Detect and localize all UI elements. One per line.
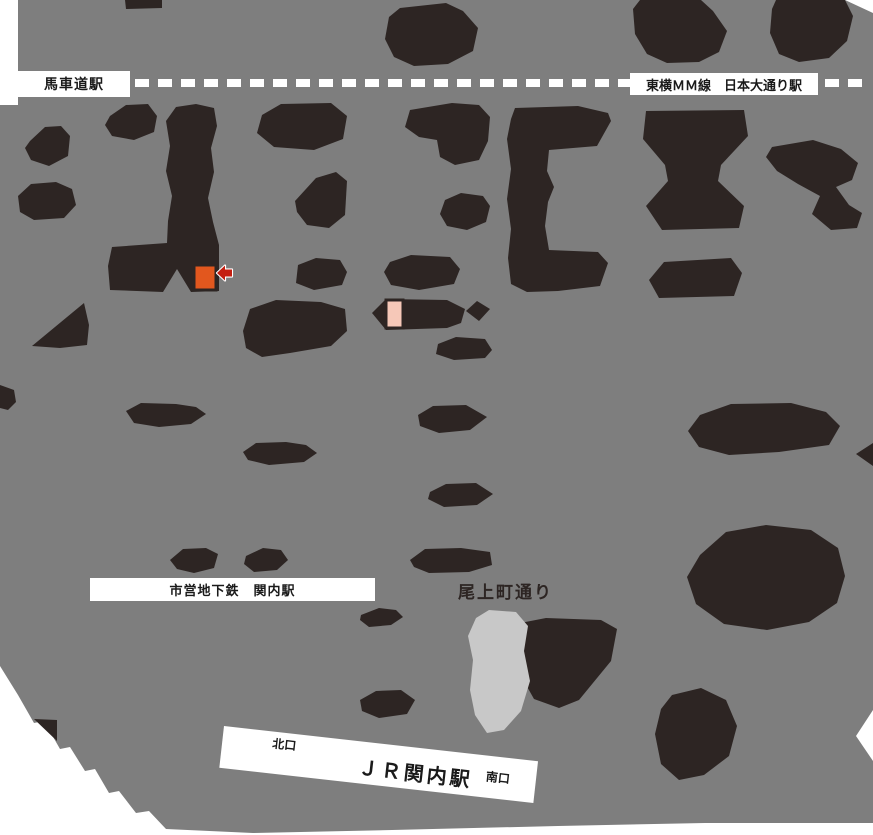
- station-label-bashamichi: 馬車道駅: [18, 71, 130, 97]
- station-label-subway-kannai: 市営地下鉄 関内駅: [90, 578, 375, 601]
- building: [649, 258, 742, 298]
- map-graphic: [0, 0, 873, 835]
- north-exit-label: 北口: [271, 735, 297, 755]
- station-label-mm-line-nihonodori: 東横ＭＭ線 日本大通り駅: [630, 73, 818, 95]
- building: [384, 255, 460, 290]
- south-exit-label: 南口: [485, 768, 511, 788]
- entrance-marker: [386, 300, 403, 328]
- building: [125, 0, 162, 9]
- destination-marker: [194, 265, 216, 290]
- street-label-onoecho: 尾上町通り: [458, 578, 553, 603]
- map-canvas: 馬車道駅 東横ＭＭ線 日本大通り駅 市営地下鉄 関内駅 尾上町通り 北口 ＪＲ関…: [0, 0, 873, 835]
